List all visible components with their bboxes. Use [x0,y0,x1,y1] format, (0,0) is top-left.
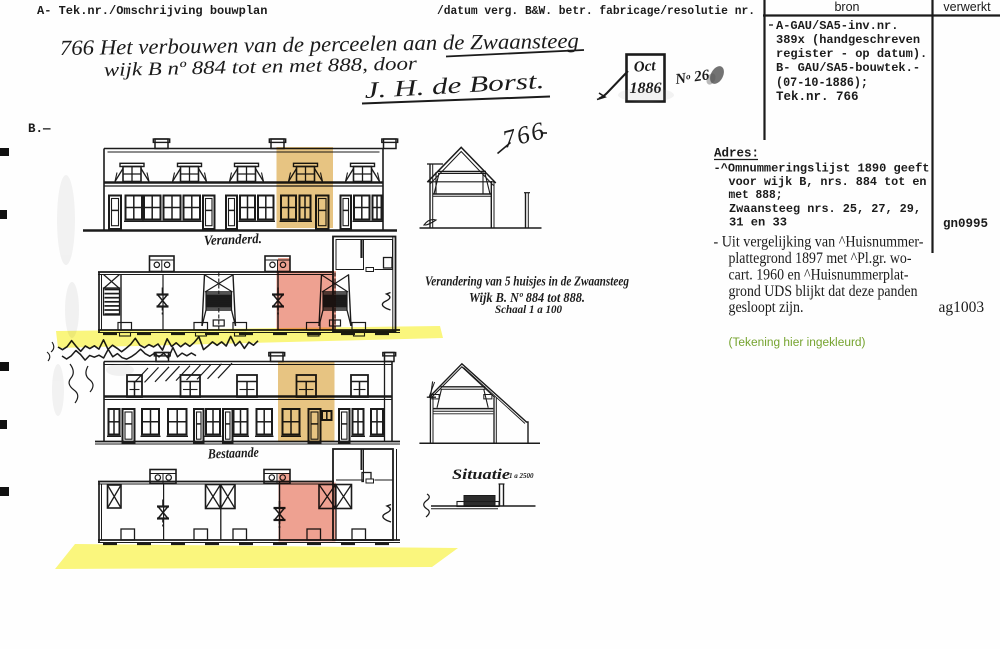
svg-text:B- GAU/SA5-bouwtek.-: B- GAU/SA5-bouwtek.- [776,61,920,75]
svg-text:A- Tek.nr./Omschrijving bouwpl: A- Tek.nr./Omschrijving bouwplan [37,4,267,18]
svg-text:389x (handgeschreven: 389x (handgeschreven [776,33,920,47]
svg-text:voor wijk B, nrs. 884 tot en: voor wijk B, nrs. 884 tot en [729,175,927,189]
svg-text:Tek.nr. 766: Tek.nr. 766 [776,90,859,104]
svg-text:Adres:: Adres: [714,147,759,161]
svg-text:Zwaansteeg nrs. 25, 27, 29,: Zwaansteeg nrs. 25, 27, 29, [729,202,921,216]
svg-text:-^Omnummeringslijst 1890 geeft: -^Omnummeringslijst 1890 geeft [714,162,930,176]
svg-text:ag1003: ag1003 [939,299,985,316]
svg-text:gn0995: gn0995 [943,217,988,231]
svg-text:/datum verg. B&W. betr. fabric: /datum verg. B&W. betr. fabricage/resolu… [437,5,755,18]
svg-text:Verandering van 5 huisjes in d: Verandering van 5 huisjes in de Zwaanste… [425,275,629,290]
svg-text:Veranderd.: Veranderd. [204,232,262,249]
svg-text:31 en 33: 31 en 33 [729,216,787,230]
svg-text:gesloopt zijn.: gesloopt zijn. [729,299,804,316]
svg-text:met 888;: met 888; [729,188,783,202]
svg-text:Bestaande: Bestaande [207,446,259,463]
svg-text:bron: bron [834,0,859,14]
svg-text:verwerkt: verwerkt [943,0,991,14]
svg-text:plattegrond 1897 met ^Pl.gr. w: plattegrond 1897 met ^Pl.gr. wo- [729,250,912,267]
svg-text:1 a 2500: 1 a 2500 [509,472,534,480]
svg-text:B.—: B.— [28,122,51,136]
svg-text:A-GAU/SA5-inv.nr.: A-GAU/SA5-inv.nr. [776,19,898,33]
svg-text:cart. 1960 en ^Huisnummerplat-: cart. 1960 en ^Huisnummerplat- [729,267,909,284]
svg-text:Situatie: Situatie [452,467,510,483]
svg-text:register - op datum).: register - op datum). [776,47,927,61]
svg-text:grond UDS blijkt dat deze pand: grond UDS blijkt dat deze panden [729,283,918,300]
svg-text:(07-10-1886);: (07-10-1886); [776,75,868,90]
svg-text:- Uit vergelijking van ^Huisnu: - Uit vergelijking van ^Huisnummer- [714,234,924,251]
svg-text:(Tekening hier ingekleurd): (Tekening hier ingekleurd) [729,337,866,349]
svg-text:Oct: Oct [633,58,657,76]
svg-text:Schaal 1 a 100: Schaal 1 a 100 [495,302,562,316]
